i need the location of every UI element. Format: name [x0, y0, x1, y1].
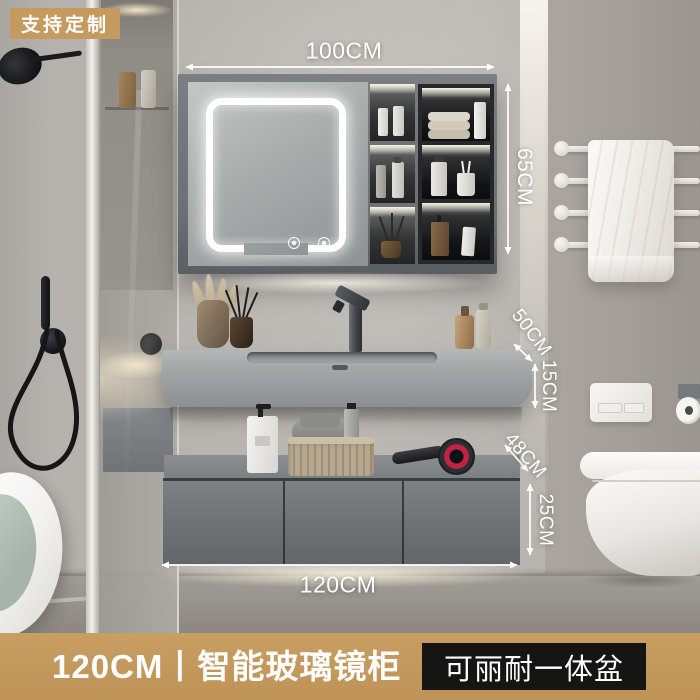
- shelf-cell: [370, 145, 415, 203]
- defog-touch-icon: [288, 237, 300, 249]
- toilet-seam: [592, 480, 700, 482]
- toiletry-tube: [461, 227, 476, 257]
- amber-pump-bottle: [431, 222, 449, 256]
- pump-head: [434, 156, 444, 162]
- shelf-light: [370, 84, 415, 94]
- storage-basket: [288, 440, 374, 476]
- shelf-light: [422, 88, 490, 98]
- frosted-bottle: [476, 309, 491, 349]
- mirror-led-strip: [206, 98, 346, 252]
- wall-hung-toilet: [578, 448, 700, 580]
- amber-glass-bottle: [455, 315, 474, 349]
- bathroom-product-photo: 支持定制 13:12: [0, 0, 700, 700]
- towel-bar-mount: [554, 173, 569, 188]
- shelf-light: [370, 145, 415, 155]
- integrated-basin: [247, 352, 437, 363]
- toilet-bowl: [586, 470, 700, 576]
- rolled-towel-fold: [300, 413, 340, 428]
- dimension-label-drawer-height: 25CM: [534, 494, 556, 547]
- towel-bar-mount: [554, 237, 569, 252]
- light-touch-icon: [318, 237, 330, 249]
- shelf-cell: [422, 88, 490, 141]
- pump-dispenser: [431, 162, 447, 196]
- diffuser-stick: [378, 216, 389, 243]
- footer-bar: 120CM丨智能玻璃镜柜 可丽耐一体盆: [0, 633, 700, 700]
- tumbler-cup: [457, 173, 475, 196]
- spray-nozzle: [394, 157, 401, 163]
- towel-bar-mount: [554, 205, 569, 220]
- toiletry-tube: [378, 108, 388, 136]
- niche-bottle-amber: [119, 72, 136, 108]
- diffuser-stick: [394, 216, 405, 243]
- basket-dispenser-pump: [347, 403, 356, 409]
- dimension-label-cabinet-height: 65CM: [512, 148, 536, 206]
- towel-bar-mount: [554, 141, 569, 156]
- hair-dryer-ring: [438, 438, 475, 475]
- soap-dispenser-spout: [256, 404, 271, 409]
- storage-basket-rim: [287, 437, 375, 444]
- shelf-light: [422, 145, 490, 155]
- reed-diffuser-jar: [230, 317, 253, 348]
- product-title: 120CM丨智能玻璃镜柜: [52, 633, 401, 700]
- soap-dispenser-label: [255, 436, 270, 446]
- soap-dispenser-pump: [258, 408, 263, 417]
- basin-material-tag-label: 可丽耐一体盆: [444, 646, 624, 688]
- flower-vase: [197, 300, 229, 348]
- folded-towel: [428, 112, 470, 121]
- niche-bottle-frost: [141, 70, 156, 108]
- frosted-bottle-cap: [479, 303, 488, 310]
- customization-badge-label: 支持定制: [21, 10, 109, 37]
- shelf-light: [422, 203, 490, 213]
- toiletry-tube: [393, 106, 404, 136]
- basin-overflow-hole: [332, 365, 348, 370]
- toilet-paper-core: [685, 406, 693, 415]
- shelf-black-frame: [418, 84, 494, 264]
- faucet-body: [349, 303, 362, 352]
- toiletry-bottle: [474, 102, 486, 139]
- folded-towel: [428, 130, 470, 139]
- folded-towel: [428, 121, 470, 130]
- shelf-unit: [370, 84, 494, 264]
- dimension-label-bottom-width: 120CM: [300, 572, 377, 599]
- shelf-cell: [370, 207, 415, 264]
- flush-button: [624, 403, 644, 413]
- drawer-cabinet: [163, 478, 520, 565]
- shelf-cell: [370, 84, 415, 141]
- flush-button: [598, 403, 622, 413]
- dimension-label-top-width: 100CM: [306, 38, 383, 65]
- drawer-seam: [283, 481, 285, 565]
- shelf-cell: [422, 203, 490, 260]
- diffuser-jar: [381, 241, 401, 258]
- amber-bottle-cap: [461, 306, 469, 316]
- shelf-cell: [422, 145, 490, 199]
- drawer-seam: [402, 481, 404, 565]
- toiletry-bottle: [376, 165, 386, 198]
- bath-towel-hem: [588, 256, 674, 282]
- basin-material-tag: 可丽耐一体盆: [422, 643, 646, 690]
- diffuser-stick: [391, 213, 393, 243]
- spray-bottle: [392, 162, 404, 198]
- customization-badge: 支持定制: [10, 8, 120, 39]
- dimension-label-counter-height: 15CM: [537, 360, 559, 413]
